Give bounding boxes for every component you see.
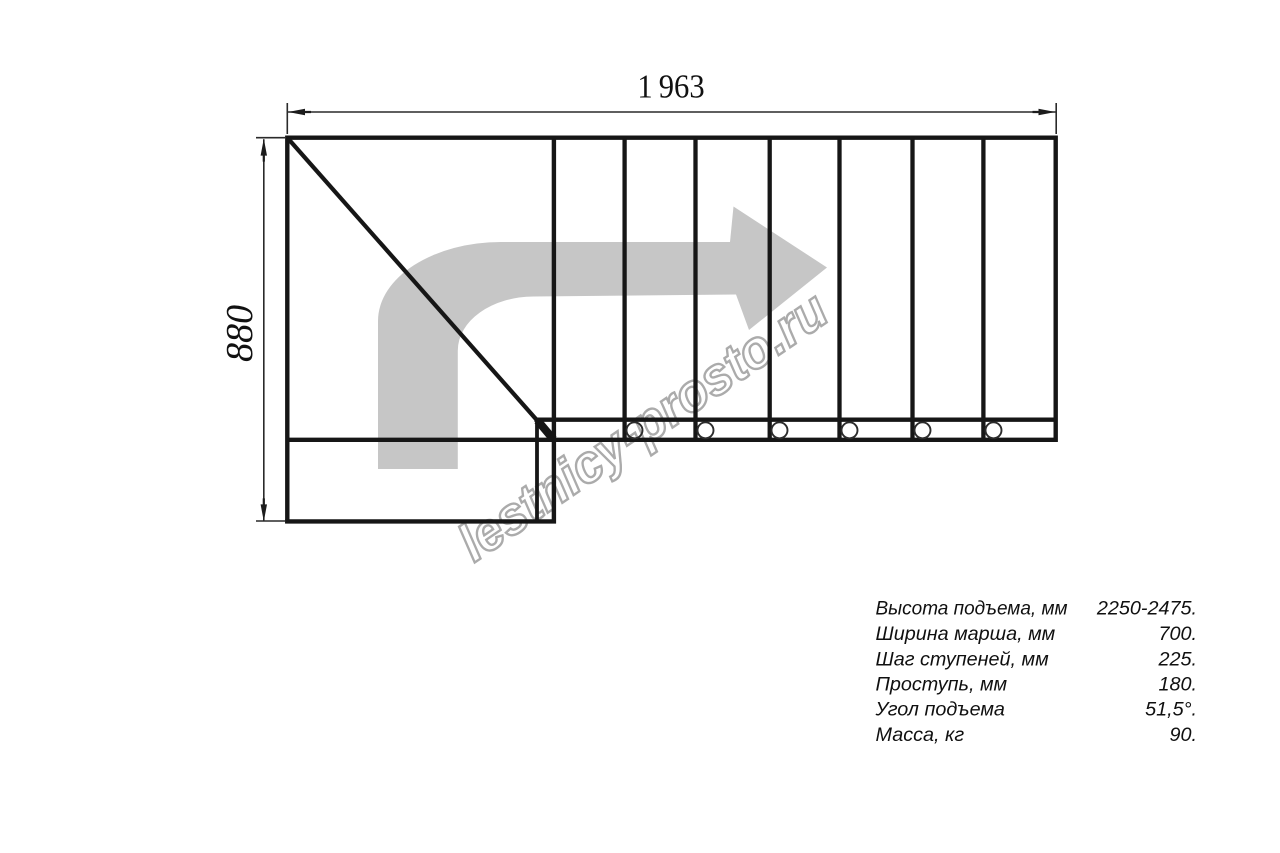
svg-text:180.: 180. — [1158, 674, 1197, 696]
svg-text:2250-2475.: 2250-2475. — [1096, 598, 1197, 620]
svg-text:Масса, кг: Масса, кг — [876, 724, 965, 746]
svg-text:51,5°.: 51,5°. — [1145, 699, 1197, 721]
svg-text:225.: 225. — [1157, 649, 1197, 671]
svg-text:Проступь, мм: Проступь, мм — [876, 674, 1008, 696]
svg-text:lestnicy-prosto.ru: lestnicy-prosto.ru — [448, 280, 839, 573]
svg-text:90.: 90. — [1170, 724, 1198, 746]
svg-text:Угол подъема: Угол подъема — [875, 699, 1005, 721]
svg-text:1 963: 1 963 — [637, 67, 704, 105]
svg-text:Высота подъема, мм: Высота подъема, мм — [876, 598, 1068, 620]
svg-text:700.: 700. — [1158, 623, 1197, 645]
svg-text:Шаг ступеней, мм: Шаг ступеней, мм — [876, 649, 1050, 671]
svg-text:880: 880 — [219, 305, 261, 362]
svg-text:Ширина марша, мм: Ширина марша, мм — [876, 623, 1056, 645]
